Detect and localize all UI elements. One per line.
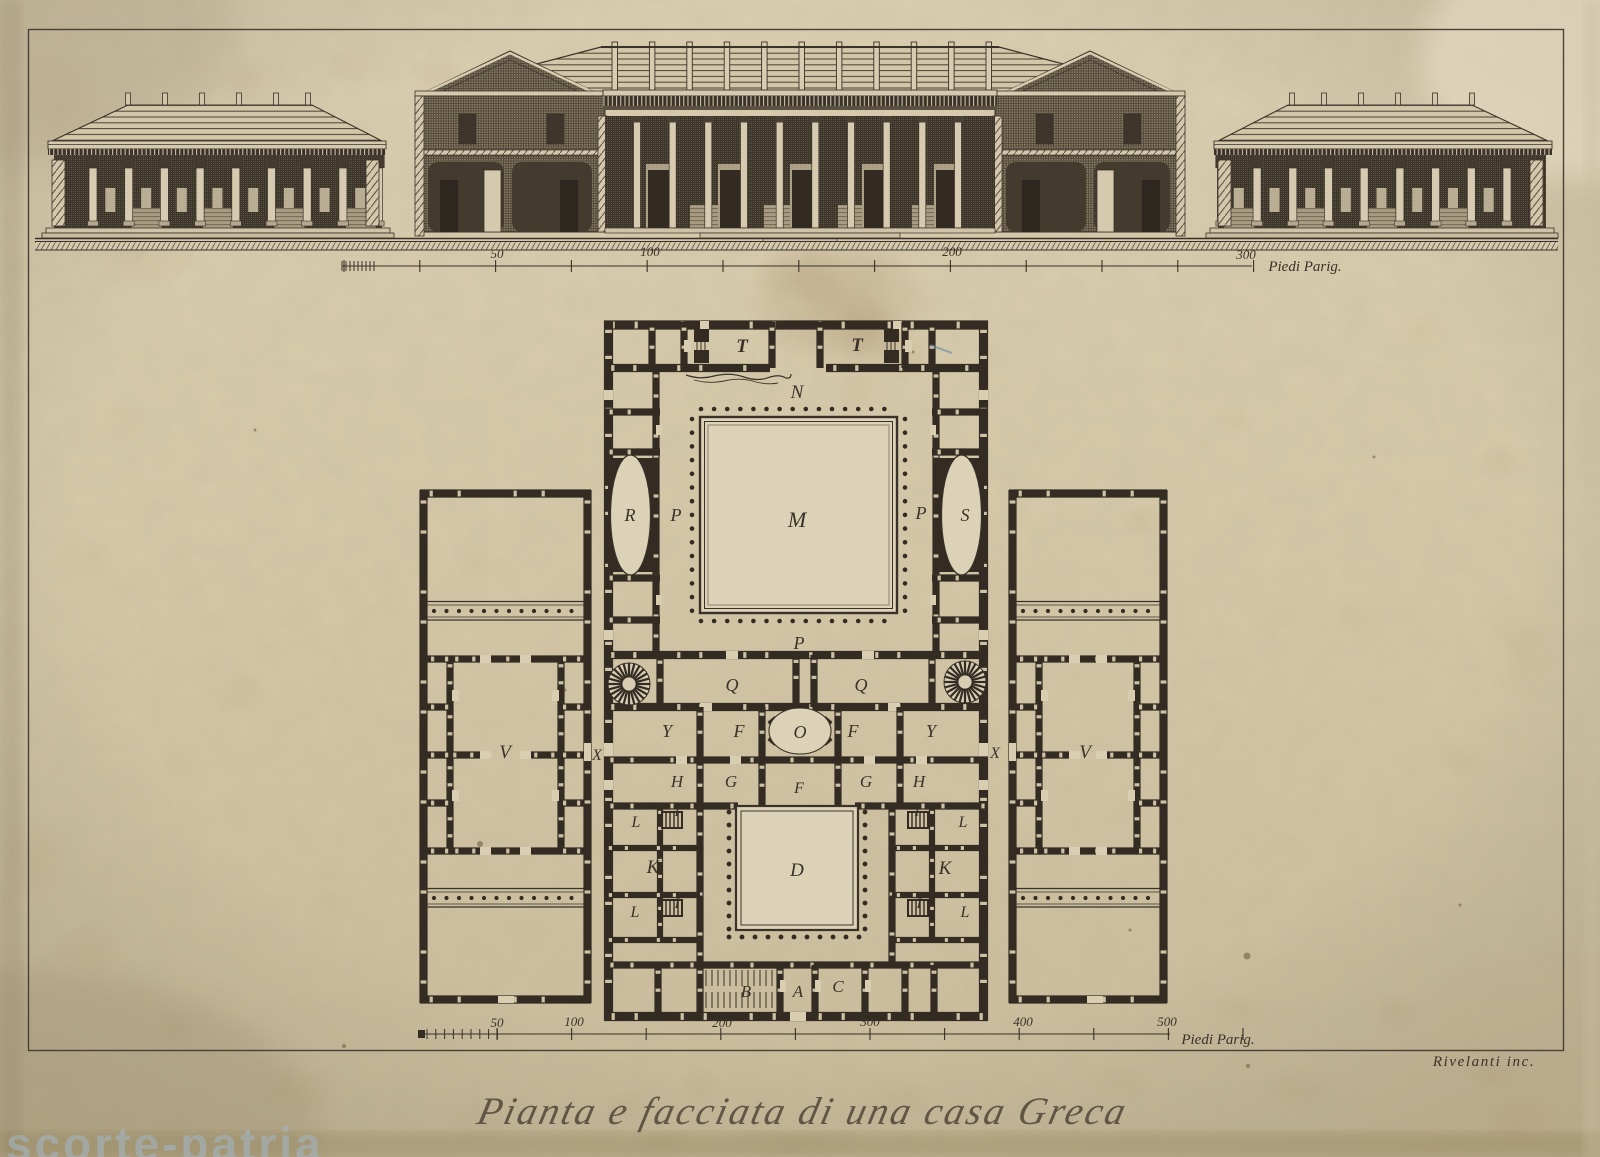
svg-text:L: L	[960, 904, 970, 921]
svg-text:C: C	[832, 977, 844, 996]
svg-text:Piedi Parig.: Piedi Parig.	[1267, 259, 1341, 275]
svg-text:G: G	[860, 772, 872, 791]
svg-text:T: T	[736, 336, 749, 357]
svg-text:I: I	[674, 896, 681, 912]
svg-text:H: H	[670, 772, 685, 791]
svg-text:I: I	[674, 804, 681, 820]
svg-text:Q: Q	[855, 675, 868, 695]
svg-text:100: 100	[564, 1014, 584, 1029]
svg-text:100: 100	[640, 244, 660, 259]
svg-text:L: L	[630, 904, 640, 921]
svg-text:300: 300	[1235, 247, 1256, 262]
svg-text:N: N	[790, 382, 805, 403]
svg-text:P: P	[915, 503, 927, 523]
svg-text:200: 200	[712, 1015, 732, 1030]
svg-text:T: T	[851, 335, 864, 356]
svg-text:Q: Q	[726, 675, 739, 695]
svg-text:X: X	[591, 747, 603, 764]
svg-text:50: 50	[491, 1015, 505, 1030]
svg-text:G: G	[725, 772, 737, 791]
svg-text:R: R	[624, 505, 636, 525]
svg-text:I: I	[916, 896, 923, 912]
svg-text:X: X	[989, 745, 1001, 762]
svg-text:I: I	[914, 804, 921, 820]
svg-text:400: 400	[1013, 1014, 1033, 1029]
svg-text:P: P	[793, 633, 805, 653]
svg-text:300: 300	[859, 1014, 880, 1029]
svg-text:O: O	[794, 722, 807, 742]
svg-text:Piedi Parig.: Piedi Parig.	[1180, 1032, 1254, 1048]
svg-text:F: F	[847, 721, 860, 741]
svg-text:Rivelanti inc.: Rivelanti inc.	[1432, 1054, 1535, 1070]
svg-text:M: M	[787, 507, 808, 532]
svg-text:scorte-patria: scorte-patria	[6, 1118, 324, 1157]
svg-text:Pianta e facciata di una casa: Pianta e facciata di una casa Greca	[472, 1089, 1132, 1132]
svg-text:L: L	[631, 814, 641, 831]
svg-text:S: S	[961, 505, 970, 525]
svg-text:F: F	[793, 780, 804, 797]
svg-text:A: A	[792, 982, 804, 1001]
svg-text:K: K	[938, 858, 953, 879]
svg-text:P: P	[670, 505, 682, 525]
svg-text:50: 50	[491, 246, 505, 261]
svg-text:L: L	[958, 814, 968, 831]
svg-text:K: K	[646, 857, 661, 878]
svg-text:B: B	[741, 982, 752, 1001]
svg-text:200: 200	[942, 244, 962, 259]
svg-text:D: D	[789, 860, 804, 881]
svg-text:H: H	[912, 772, 927, 791]
svg-text:F: F	[733, 721, 746, 741]
svg-text:500: 500	[1157, 1014, 1177, 1029]
